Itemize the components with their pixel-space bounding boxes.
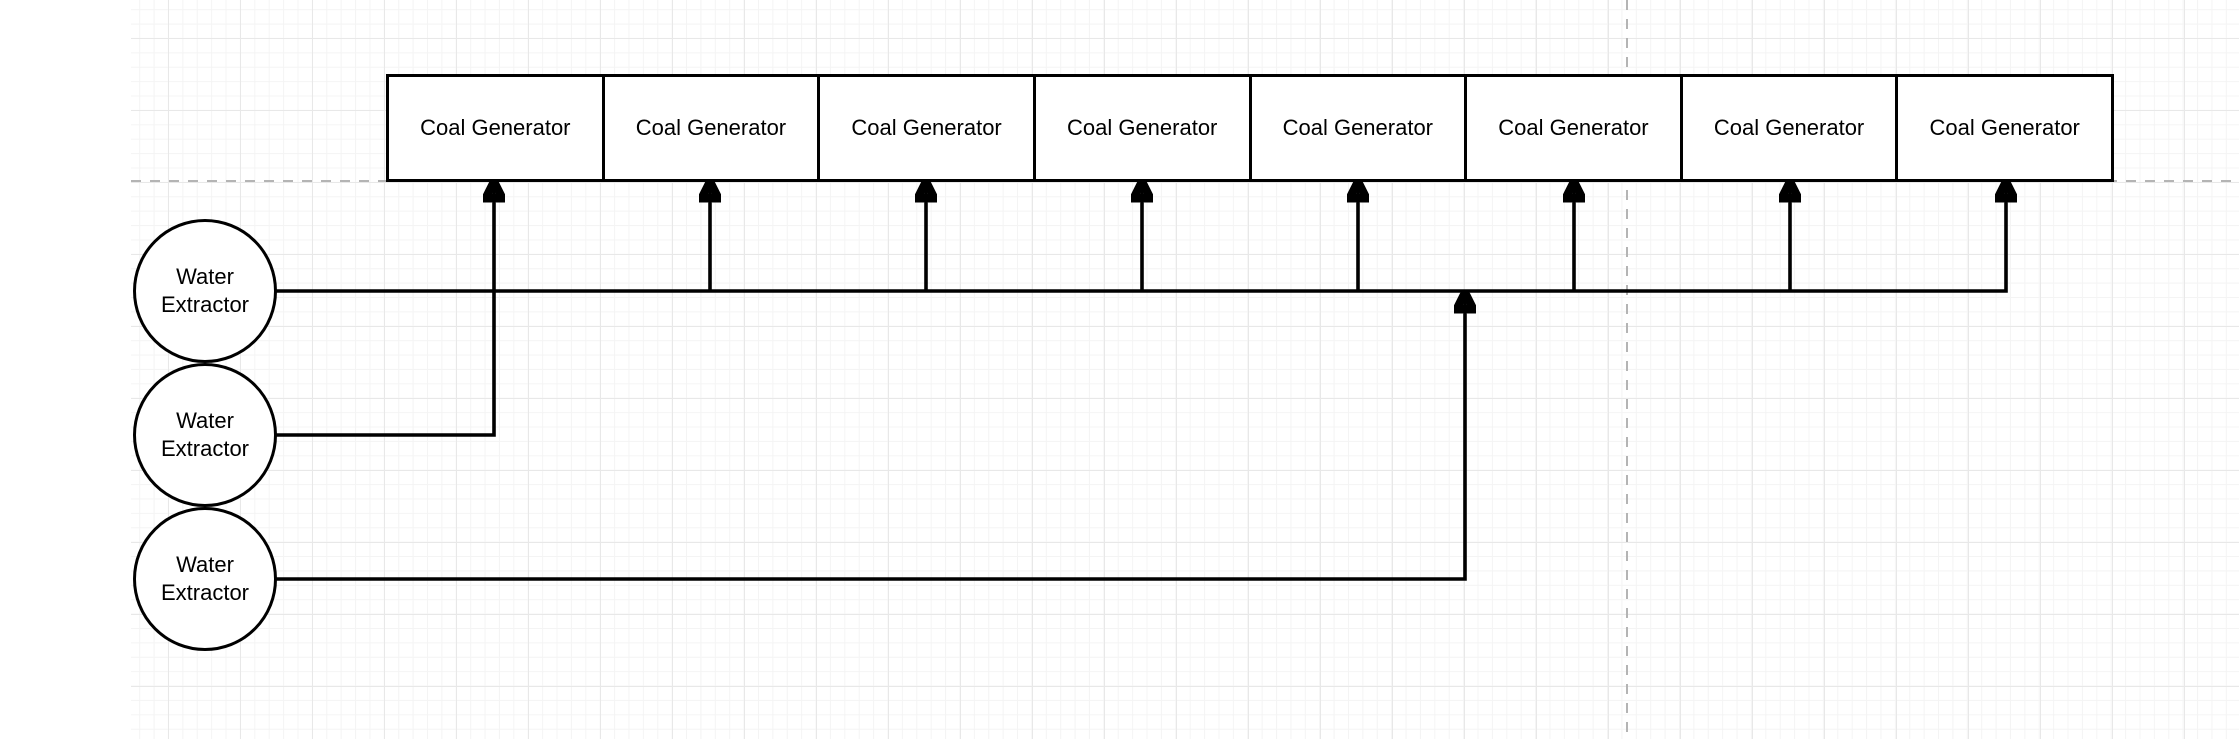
diagram-canvas[interactable]: Coal GeneratorCoal GeneratorCoal Generat…: [0, 0, 2239, 739]
node-coal-generator-7[interactable]: Coal Generator: [1680, 77, 1896, 179]
node-coal-generator-6[interactable]: Coal Generator: [1464, 77, 1680, 179]
node-coal-generator-4[interactable]: Coal Generator: [1033, 77, 1249, 179]
connector-we2-to-coal1[interactable]: [276, 184, 494, 435]
node-coal-generator-3[interactable]: Coal Generator: [817, 77, 1033, 179]
node-coal-generator-2[interactable]: Coal Generator: [602, 77, 818, 179]
node-water-extractor-1[interactable]: Water Extractor: [133, 219, 277, 363]
node-water-extractor-3[interactable]: Water Extractor: [133, 507, 277, 651]
coal-generator-row: Coal GeneratorCoal GeneratorCoal Generat…: [386, 74, 2114, 182]
connector-we3-to-bus[interactable]: [276, 295, 1465, 579]
node-coal-generator-5[interactable]: Coal Generator: [1249, 77, 1465, 179]
node-water-extractor-2[interactable]: Water Extractor: [133, 363, 277, 507]
node-coal-generator-8[interactable]: Coal Generator: [1895, 77, 2111, 179]
node-coal-generator-1[interactable]: Coal Generator: [389, 77, 602, 179]
